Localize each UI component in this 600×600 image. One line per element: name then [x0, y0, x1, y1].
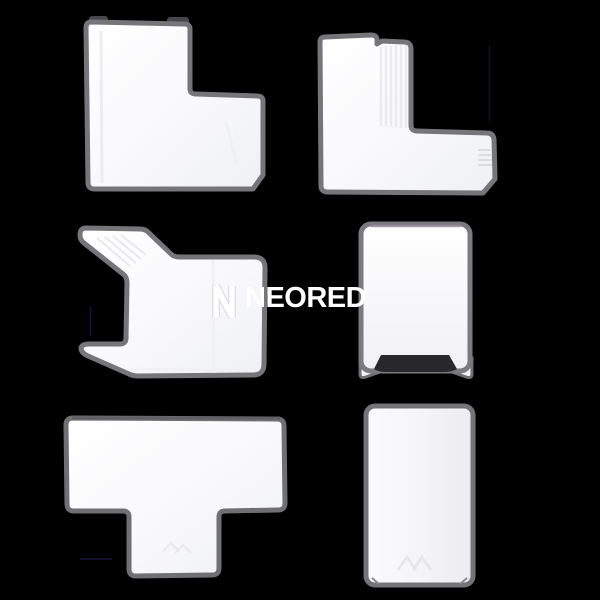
internal-corner-fitting — [80, 228, 265, 376]
tee-junction-fitting — [66, 418, 285, 576]
end-cap-fitting — [360, 224, 472, 378]
cap-underside — [374, 355, 457, 372]
straight-coupler-fitting — [366, 406, 473, 585]
product-photo: NEORED — [0, 0, 600, 600]
flat-angle-fitting — [86, 16, 263, 189]
fittings-illustration — [0, 0, 600, 600]
elbow-l-fitting — [320, 35, 495, 193]
